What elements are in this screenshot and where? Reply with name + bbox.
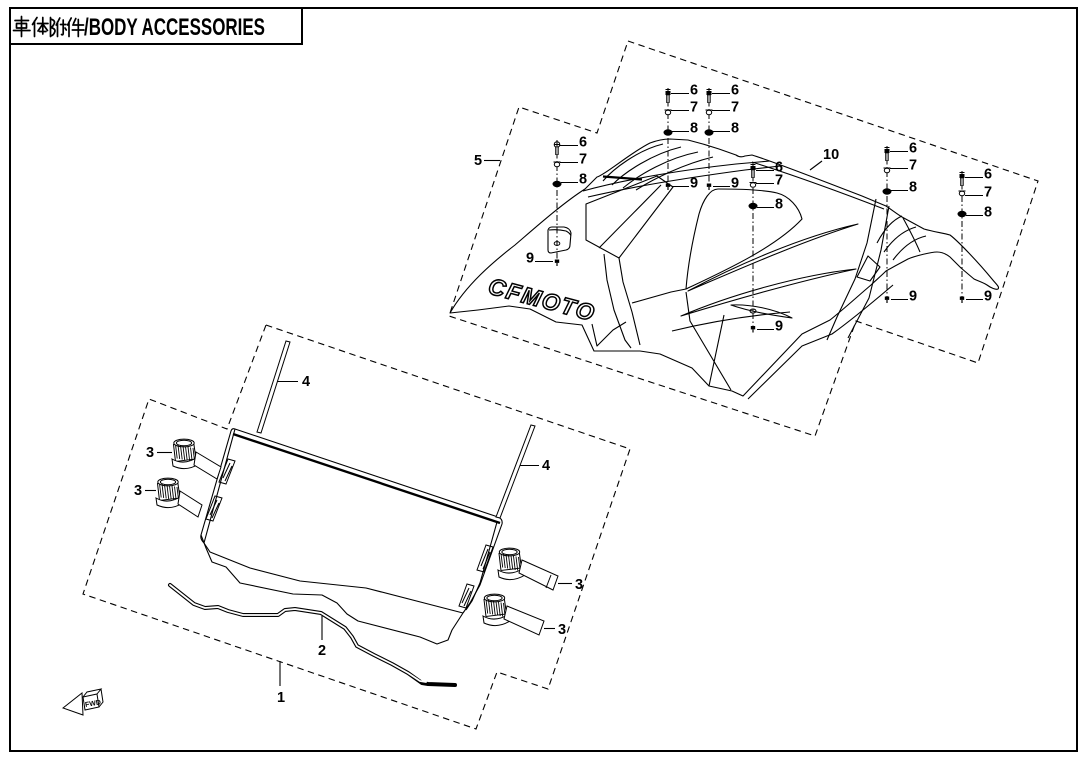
svg-text:3: 3 bbox=[575, 577, 583, 593]
svg-text:7: 7 bbox=[909, 158, 917, 174]
svg-text:6: 6 bbox=[579, 135, 587, 151]
svg-text:6: 6 bbox=[731, 83, 739, 99]
svg-text:9: 9 bbox=[526, 251, 534, 267]
svg-text:7: 7 bbox=[984, 185, 992, 201]
svg-text:7: 7 bbox=[775, 173, 783, 189]
svg-text:1: 1 bbox=[277, 690, 285, 706]
svg-text:/BODY ACCESSORIES: /BODY ACCESSORIES bbox=[84, 14, 265, 41]
svg-text:9: 9 bbox=[984, 289, 992, 305]
svg-text:9: 9 bbox=[909, 289, 917, 305]
svg-text:7: 7 bbox=[579, 152, 587, 168]
svg-text:3: 3 bbox=[558, 622, 566, 638]
svg-text:4: 4 bbox=[302, 374, 310, 390]
svg-text:9: 9 bbox=[731, 176, 739, 192]
svg-text:7: 7 bbox=[690, 100, 698, 116]
svg-text:8: 8 bbox=[775, 197, 783, 213]
svg-text:8: 8 bbox=[731, 121, 739, 137]
svg-text:2: 2 bbox=[318, 643, 326, 659]
svg-text:3: 3 bbox=[134, 483, 142, 499]
svg-text:8: 8 bbox=[984, 205, 992, 221]
svg-text:9: 9 bbox=[775, 319, 783, 335]
svg-text:4: 4 bbox=[542, 458, 550, 474]
svg-text:6: 6 bbox=[690, 83, 698, 99]
svg-text:8: 8 bbox=[579, 172, 587, 188]
svg-text:3: 3 bbox=[146, 445, 154, 461]
svg-text:6: 6 bbox=[909, 141, 917, 157]
svg-text:8: 8 bbox=[909, 180, 917, 196]
svg-text:9: 9 bbox=[690, 176, 698, 192]
svg-text:7: 7 bbox=[731, 100, 739, 116]
svg-text:8: 8 bbox=[690, 121, 698, 137]
svg-text:10: 10 bbox=[823, 147, 839, 163]
svg-text:6: 6 bbox=[984, 167, 992, 183]
svg-text:5: 5 bbox=[474, 153, 482, 169]
